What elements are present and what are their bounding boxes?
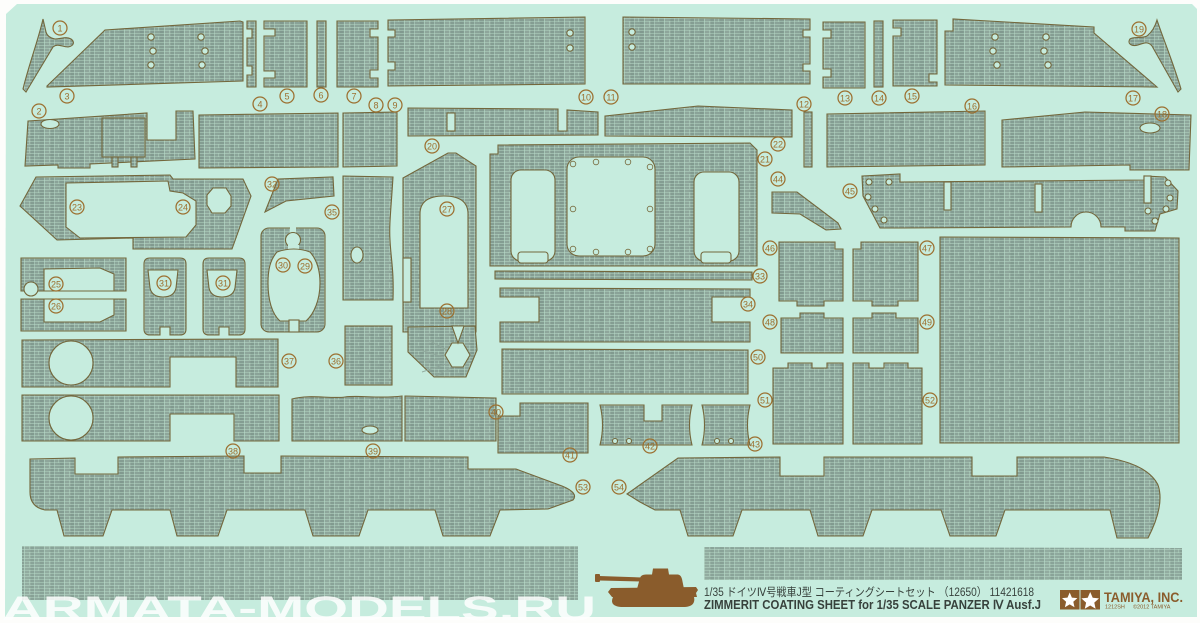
svg-text:10: 10: [581, 92, 591, 102]
svg-text:2: 2: [36, 106, 41, 116]
svg-text:36: 36: [331, 356, 341, 366]
svg-text:44: 44: [773, 174, 783, 184]
svg-text:17: 17: [1128, 93, 1138, 103]
svg-text:15: 15: [907, 91, 917, 101]
svg-text:42: 42: [645, 441, 655, 451]
svg-text:33: 33: [755, 271, 765, 281]
svg-text:23: 23: [72, 202, 82, 212]
svg-text:49: 49: [922, 317, 932, 327]
svg-text:32: 32: [267, 179, 277, 189]
svg-text:50: 50: [753, 352, 763, 362]
svg-text:39: 39: [368, 446, 378, 456]
svg-text:38: 38: [228, 446, 238, 456]
svg-text:20: 20: [427, 141, 437, 151]
svg-text:11: 11: [606, 92, 615, 102]
svg-text:30: 30: [278, 260, 288, 270]
svg-text:54: 54: [614, 482, 624, 492]
svg-text:25: 25: [51, 279, 61, 289]
svg-text:8: 8: [373, 100, 378, 110]
svg-text:1: 1: [57, 23, 62, 33]
svg-text:31: 31: [218, 278, 228, 288]
svg-text:ARMATA-MODELS.RU: ARMATA-MODELS.RU: [2, 590, 596, 623]
svg-text:16: 16: [967, 101, 977, 111]
svg-text:28: 28: [442, 306, 452, 316]
svg-text:1/35 ドイツⅣ号戦車J型 コーティングシートセット （1: 1/35 ドイツⅣ号戦車J型 コーティングシートセット （12650） 1142…: [704, 585, 1034, 599]
svg-text:14: 14: [874, 93, 884, 103]
svg-text:21: 21: [760, 154, 770, 164]
svg-text:43: 43: [750, 439, 760, 449]
svg-text:19: 19: [1134, 24, 1144, 34]
svg-text:48: 48: [765, 317, 775, 327]
svg-text:37: 37: [284, 356, 294, 366]
svg-text:27: 27: [442, 204, 452, 214]
svg-text:47: 47: [922, 243, 932, 253]
svg-text:©2012 TAMIYA: ©2012 TAMIYA: [1133, 604, 1171, 611]
svg-text:13: 13: [840, 93, 850, 103]
svg-text:41: 41: [565, 450, 575, 460]
svg-text:22: 22: [773, 139, 783, 149]
svg-text:35: 35: [327, 207, 337, 217]
svg-text:3: 3: [64, 91, 69, 101]
svg-text:40: 40: [491, 407, 501, 417]
svg-text:24: 24: [178, 202, 188, 212]
svg-text:4: 4: [257, 99, 262, 109]
svg-text:TAMIYA, INC.: TAMIYA, INC.: [1104, 590, 1183, 605]
svg-text:53: 53: [578, 482, 588, 492]
svg-text:52: 52: [925, 395, 935, 405]
svg-text:31: 31: [159, 278, 169, 288]
svg-text:18: 18: [1157, 109, 1167, 119]
svg-text:1212SH: 1212SH: [1105, 605, 1125, 611]
svg-text:5: 5: [284, 91, 289, 101]
svg-text:ZIMMERIT COATING SHEET for 1/3: ZIMMERIT COATING SHEET for 1/35 SCALE PA…: [704, 598, 1041, 612]
svg-text:12: 12: [799, 99, 809, 109]
svg-text:46: 46: [765, 243, 775, 253]
svg-text:29: 29: [300, 261, 310, 271]
svg-text:26: 26: [51, 301, 61, 311]
svg-text:6: 6: [318, 90, 323, 100]
svg-text:51: 51: [760, 395, 770, 405]
svg-text:9: 9: [392, 100, 397, 110]
svg-text:34: 34: [743, 299, 753, 309]
svg-text:45: 45: [845, 186, 855, 196]
svg-text:7: 7: [351, 91, 356, 101]
